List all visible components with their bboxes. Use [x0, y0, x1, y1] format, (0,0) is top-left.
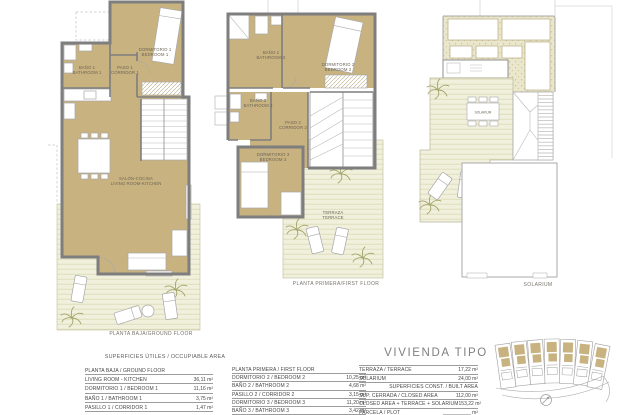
ground-floor-caption: PLANTA BAJA/GROUND FLOOR [86, 331, 216, 337]
area-table-vivienda: TERRAZA / TERRACE17,22 m² SOLARIUM24,00 … [359, 365, 478, 415]
kitchen-hob [84, 91, 96, 99]
roof-panel [502, 19, 550, 40]
room-label: BATHROOM 2 [256, 55, 286, 60]
room-label: BATHROOM 1 [72, 70, 102, 75]
table-row: PARCELA / PLOT__________ m² [359, 409, 478, 415]
table-subheader: SUPERFICIES CONST. / BUILT AREA [359, 383, 478, 392]
room-label: CORRIDOR 2 [279, 125, 307, 130]
table-row: SOLARIUM24,00 m² [359, 375, 478, 384]
row-of-houses [495, 339, 610, 390]
toilet [271, 16, 282, 25]
table-header: PLANTA BAJA / GROUND FLOOR [85, 366, 213, 375]
room-label: LIVING ROOM-KITCHEN [111, 181, 162, 186]
table-row: TERRAZA / TERRACE17,22 m² [359, 366, 478, 375]
room-label: BEDROOM 1 [142, 52, 169, 57]
table-header: PLANTA PRIMERA / FIRST FLOOR [232, 366, 366, 374]
solarium-caption: SOLARIUM [500, 282, 576, 288]
ground-floor-plan: DORMITORIO 1 BEDROOM 1 BAÑO 1 BATHROOM 1… [48, 0, 213, 340]
shower [230, 94, 241, 109]
armchair [172, 230, 187, 256]
table-row: SUP. CERRADA / CLOSED AREA112,00 m² [359, 392, 478, 401]
table-row: BAÑO 3 / BATHROOM 33,42 m² [232, 407, 366, 415]
roof-panel [525, 42, 550, 90]
floor-plan-sheet: DORMITORIO 1 BEDROOM 1 BAÑO 1 BATHROOM 1… [0, 0, 620, 415]
lower-roof [462, 163, 557, 277]
washbasin [255, 16, 268, 34]
table-row: DORMITORIO 3 / BEDROOM 311,20 m² [232, 399, 366, 407]
room-label: BEDROOM 2 [325, 67, 352, 72]
bed [241, 162, 268, 208]
area-table-ground: PLANTA BAJA / GROUND FLOOR LIVING ROOM -… [85, 366, 213, 412]
table-row: DORMITORIO 2 / BEDROOM 210,25 m² [232, 374, 366, 382]
roof-panel [502, 46, 522, 58]
site-plan-mini-map [494, 336, 618, 412]
roof-panel [450, 46, 472, 58]
room-label: SOLARIUM [475, 111, 492, 115]
wardrobe [325, 75, 367, 88]
table-row: LIVING ROOM - KITCHEN36,11 m² [85, 375, 213, 384]
roof-panel [448, 19, 498, 40]
kitchen-sink-unit [64, 103, 75, 119]
balcony-ledge [215, 96, 227, 109]
table-row: BAÑO 2 / BATHROOM 24,68 m² [232, 382, 366, 390]
room-label: TERRACE [322, 215, 343, 220]
dining-table [78, 139, 110, 173]
balcony-ledge [215, 112, 227, 125]
table-row: PASILLO 2 / CORRIDOR 23,15 m² [232, 391, 366, 399]
table-row: DORMITORIO 1 / BEDROOM 111,16 m² [85, 384, 213, 393]
toilet [230, 112, 239, 122]
stairs [310, 92, 373, 168]
solarium-plan: SOLARIUM [418, 0, 620, 295]
washbasin [79, 44, 92, 51]
room-label: BEDROOM 3 [260, 157, 287, 162]
table-row: BAÑO 1 / BATHROOM 13,75 m² [85, 394, 213, 403]
wardrobe [142, 82, 181, 95]
vivienda-tipo-heading: VIVIENDA TIPO [380, 347, 492, 359]
wardrobe [281, 192, 301, 215]
occupiable-area-title: SUPERFICIES ÚTILES / OCCUPIABLE AREA [100, 354, 230, 360]
table-row: CLOSED AREA + TERRACE + SOLARIUM153,22 m… [359, 400, 478, 409]
sofa [128, 253, 166, 270]
north-arrow-icon [541, 395, 552, 406]
area-table-first: PLANTA PRIMERA / FIRST FLOOR DORMITORIO … [232, 366, 366, 415]
garden-table [142, 305, 154, 317]
room-label: CORRIDOR 1 [111, 70, 139, 75]
roof-panel [476, 46, 498, 58]
table-row: PASILLO 1 / CORRIDOR 11,47 m² [85, 403, 213, 412]
room-label: BATHROOM 3 [243, 103, 273, 108]
first-floor-caption: PLANTA PRIMERA/FIRST FLOOR [272, 281, 400, 287]
first-floor-plan: BAÑO 2 BATHROOM 2 DORMITORIO 2 BEDROOM 2… [213, 0, 395, 295]
bathtub [64, 45, 76, 60]
